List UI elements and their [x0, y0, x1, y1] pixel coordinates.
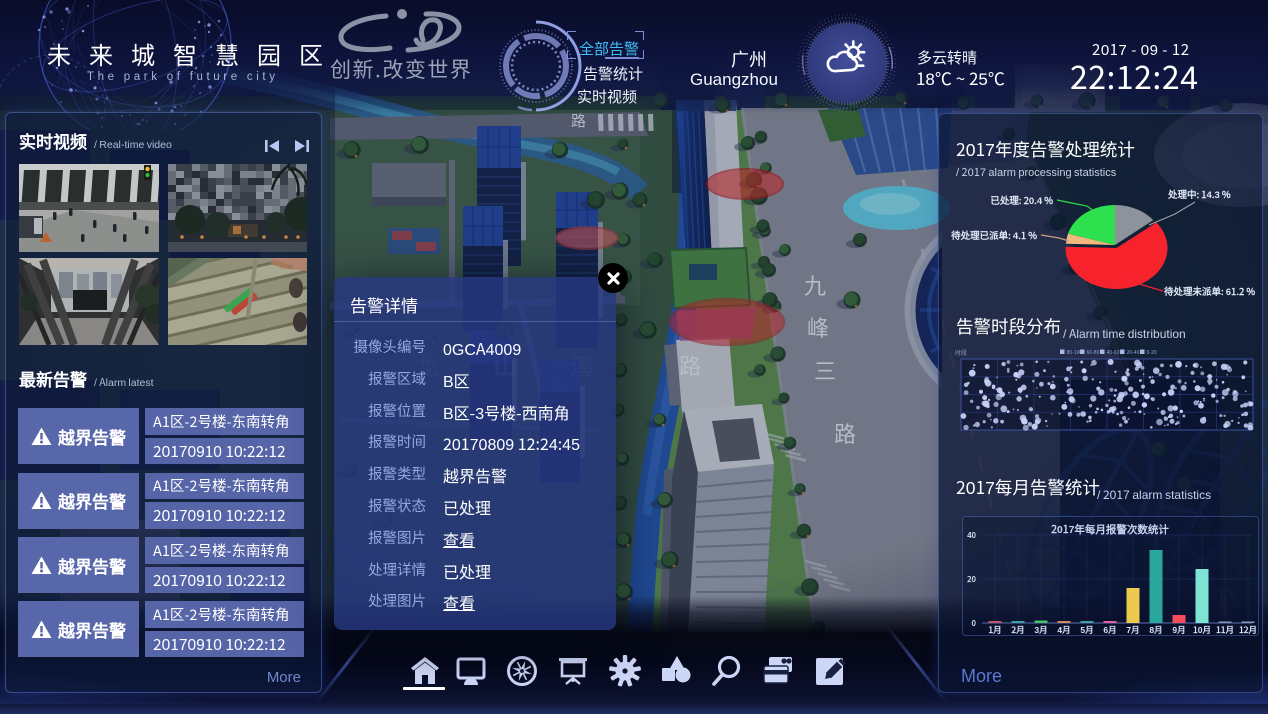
svg-text:待处理未派单: 61.2 %: 待处理未派单: 61.2 %: [1164, 284, 1255, 298]
svg-text:6月: 6月: [1103, 624, 1116, 636]
svg-text:待处理已派单: 4.1 %: 待处理已派单: 4.1 %: [951, 228, 1037, 242]
svg-text:0-20: 0-20: [1147, 349, 1157, 356]
svg-text:9月: 9月: [1172, 624, 1185, 636]
svg-text:已处理: 20.4 %: 已处理: 20.4 %: [990, 193, 1053, 207]
svg-text:7月: 7月: [1126, 624, 1139, 636]
svg-text:40: 40: [967, 530, 976, 541]
svg-text:3月: 3月: [1034, 624, 1047, 636]
svg-text:1月: 1月: [988, 624, 1001, 636]
svg-text:40-60: 40-60: [1107, 349, 1120, 356]
svg-text:10月: 10月: [1193, 624, 1211, 636]
svg-text:8月: 8月: [1149, 624, 1162, 636]
svg-text:4月: 4月: [1057, 624, 1070, 636]
svg-text:2月: 2月: [1011, 624, 1024, 636]
svg-text:5月: 5月: [1080, 624, 1093, 636]
svg-text:时段: 时段: [955, 348, 967, 357]
svg-text:12月: 12月: [1239, 624, 1257, 636]
svg-text:20: 20: [967, 574, 976, 585]
svg-text:0: 0: [972, 618, 977, 629]
svg-text:60-80: 60-80: [1087, 349, 1100, 356]
svg-text:处理中: 14.3 %: 处理中: 14.3 %: [1167, 187, 1231, 201]
svg-text:11月: 11月: [1216, 624, 1234, 636]
svg-text:80-100: 80-100: [1067, 349, 1083, 356]
svg-text:20-40: 20-40: [1127, 349, 1140, 356]
